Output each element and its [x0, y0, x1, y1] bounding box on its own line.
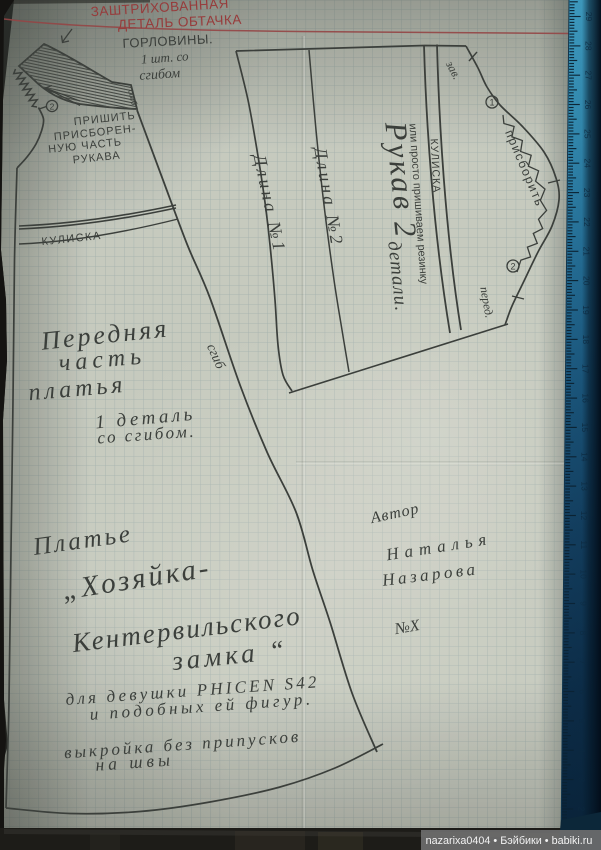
svg-text:3: 3 — [577, 777, 587, 782]
svg-text:7: 7 — [578, 660, 588, 665]
svg-text:21: 21 — [582, 247, 592, 257]
svg-text:11: 11 — [579, 540, 589, 549]
svg-text:4: 4 — [577, 748, 587, 753]
svg-text:5: 5 — [577, 719, 587, 724]
svg-text:17: 17 — [581, 364, 591, 374]
svg-text:19: 19 — [581, 305, 591, 315]
svg-text:18: 18 — [581, 335, 591, 345]
svg-text:16: 16 — [580, 393, 590, 403]
svg-text:12: 12 — [579, 511, 589, 521]
svg-text:29: 29 — [584, 12, 594, 22]
svg-text:28: 28 — [584, 41, 594, 51]
svg-text:15: 15 — [580, 423, 590, 433]
svg-text:9: 9 — [578, 601, 588, 606]
svg-text:23: 23 — [582, 188, 592, 198]
svg-text:26: 26 — [583, 100, 593, 110]
svg-text:nazarixa0404 • Бэйбики • babik: nazarixa0404 • Бэйбики • babiki.ru — [426, 835, 593, 847]
svg-text:8: 8 — [578, 631, 588, 636]
svg-text:2: 2 — [576, 807, 586, 812]
svg-text:24: 24 — [583, 158, 593, 168]
svg-text:14: 14 — [580, 452, 590, 462]
svg-text:20: 20 — [581, 276, 591, 286]
svg-text:25: 25 — [583, 129, 593, 139]
svg-text:13: 13 — [579, 481, 589, 491]
svg-text:10: 10 — [579, 569, 589, 579]
svg-text:6: 6 — [578, 689, 588, 694]
svg-text:27: 27 — [583, 70, 593, 80]
svg-text:22: 22 — [582, 217, 592, 227]
